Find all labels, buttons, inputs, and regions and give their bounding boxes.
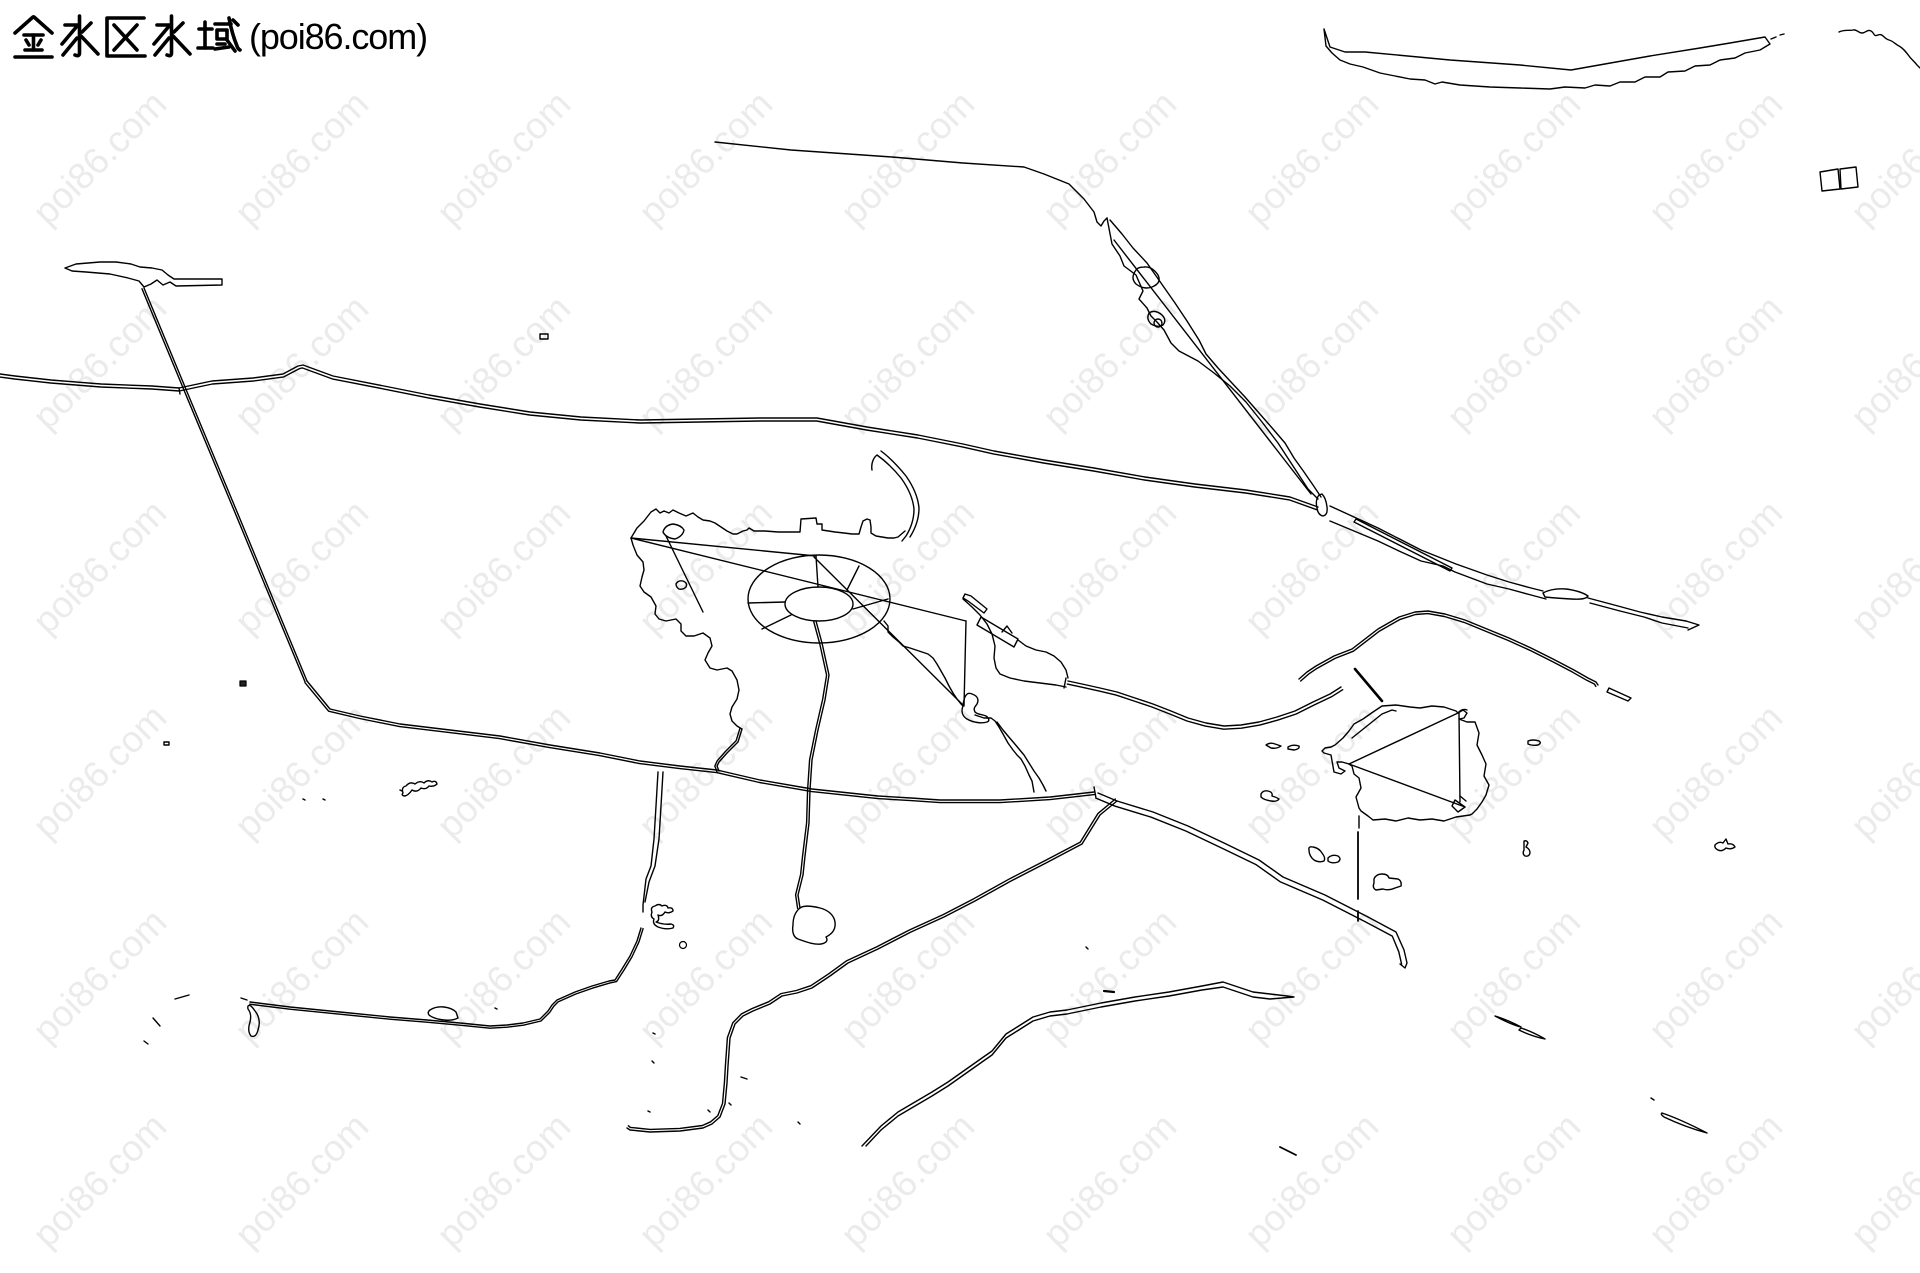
svg-text:(poi86.com): (poi86.com) <box>249 16 427 57</box>
